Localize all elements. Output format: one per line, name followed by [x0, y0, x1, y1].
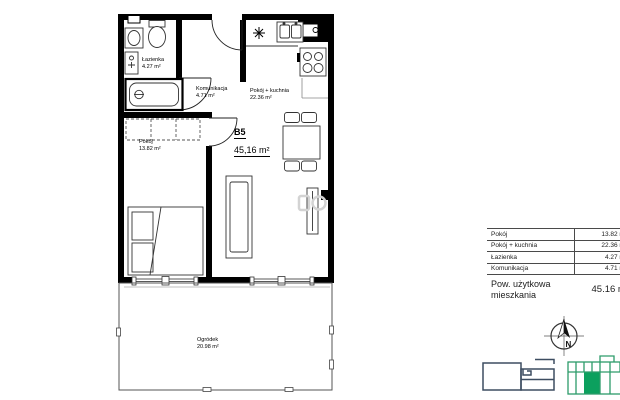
- table-row: Pokój + kuchnia 22.36 m²: [487, 241, 620, 253]
- total-area-value: 45.16 m²: [557, 284, 620, 295]
- room-label-pokoj: Pokój13.82 m²: [139, 139, 161, 153]
- toilet: [149, 21, 166, 48]
- unit-number: B5: [234, 127, 246, 139]
- stove: [297, 48, 326, 76]
- compass-north-label: N: [566, 340, 572, 349]
- ceiling-light-icon: [253, 27, 265, 39]
- sofa: [226, 176, 252, 258]
- row-value: 22.36 m²: [574, 241, 620, 252]
- area-table-rows: Pokój 13.82 m² Pokój + kuchnia 22.36 m² …: [487, 228, 620, 275]
- floor-plan-page: Łazienka4.27 m² Komunikacja4.71 m² Pokój…: [0, 0, 620, 400]
- radiator: [307, 188, 318, 234]
- unit-label: B5 45,16 m²: [234, 122, 270, 158]
- row-value: 4.27 m²: [574, 252, 620, 263]
- row-label: Komunikacja: [487, 264, 574, 275]
- bathtub: [126, 79, 183, 110]
- highlighted-unit: [584, 372, 600, 394]
- wardrobe: [126, 119, 200, 140]
- bed: [128, 207, 203, 275]
- row-label: Łazienka: [487, 252, 574, 263]
- room-label-pokoj-kuchnia: Pokój + kuchnia22.36 m²: [250, 88, 289, 102]
- table-row: Komunikacja 4.71 m²: [487, 264, 620, 276]
- room-label-lazienka: Łazienka4.27 m²: [142, 57, 164, 71]
- total-area-label: Pow. użytkowa mieszkania: [487, 279, 557, 301]
- bathroom-sink: [125, 28, 143, 48]
- floor-plan: [0, 0, 620, 400]
- row-value: 4.71 m²: [574, 264, 620, 275]
- garden-fence: [117, 283, 334, 392]
- door-arcs: [179, 20, 242, 146]
- room-label-ogrodek: Ogródek20.98 m²: [197, 337, 219, 351]
- unit-area: 45,16 m²: [234, 145, 270, 157]
- kitchen-sink: [277, 22, 303, 42]
- building-outline-green: [566, 352, 620, 398]
- room-label-komunikacja: Komunikacja4.71 m²: [196, 86, 228, 100]
- total-area-row: Pow. użytkowa mieszkania 45.16 m²: [487, 279, 620, 301]
- building-outline-navy: [481, 356, 556, 396]
- row-label: Pokój: [487, 229, 574, 240]
- washbasin-unit: [125, 52, 138, 74]
- dining-table: [283, 113, 320, 172]
- table-row: Łazienka 4.27 m²: [487, 252, 620, 264]
- row-label: Pokój + kuchnia: [487, 241, 574, 252]
- table-row: Pokój 13.82 m²: [487, 229, 620, 241]
- area-table: Pokój 13.82 m² Pokój + kuchnia 22.36 m² …: [487, 228, 620, 301]
- row-value: 13.82 m²: [574, 229, 620, 240]
